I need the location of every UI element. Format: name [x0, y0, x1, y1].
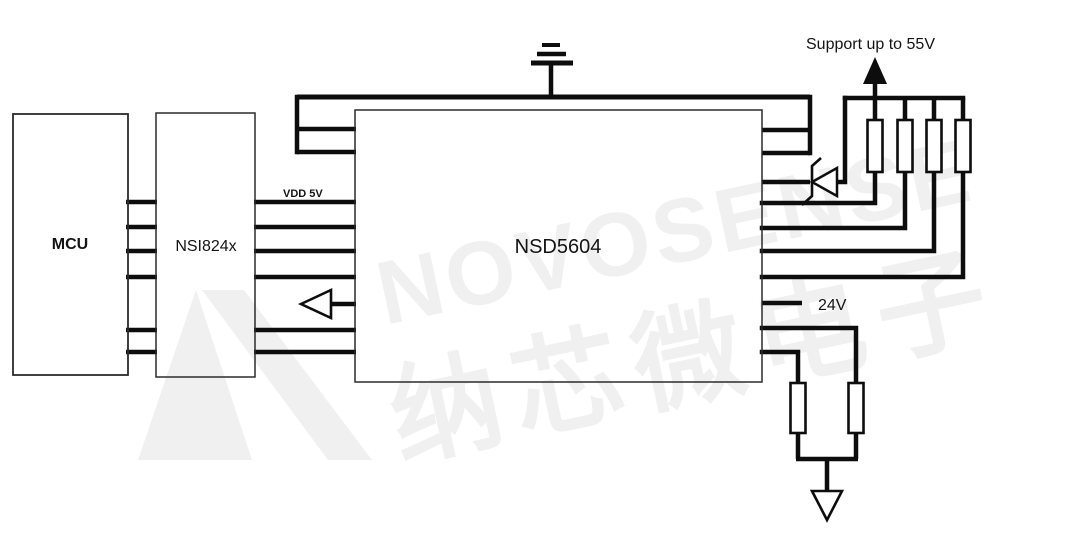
resistor: [791, 383, 806, 433]
schematic-canvas: NOVOSENSE 纳芯微电子: [0, 0, 1080, 545]
resistor: [956, 120, 971, 172]
support-voltage-label: Support up to 55V: [806, 36, 935, 53]
resistor: [868, 120, 883, 172]
circuit-diagram: NOVOSENSE 纳芯微电子: [0, 0, 1080, 545]
resistor: [849, 383, 864, 433]
resistor: [927, 120, 942, 172]
vdd-label: VDD 5V: [283, 188, 323, 200]
resistor: [898, 120, 913, 172]
rail-24v-label: 24V: [818, 297, 847, 314]
driver-label: NSD5604: [515, 236, 602, 258]
isolator-label: NSI824x: [175, 238, 236, 255]
mcu-label: MCU: [52, 236, 88, 253]
